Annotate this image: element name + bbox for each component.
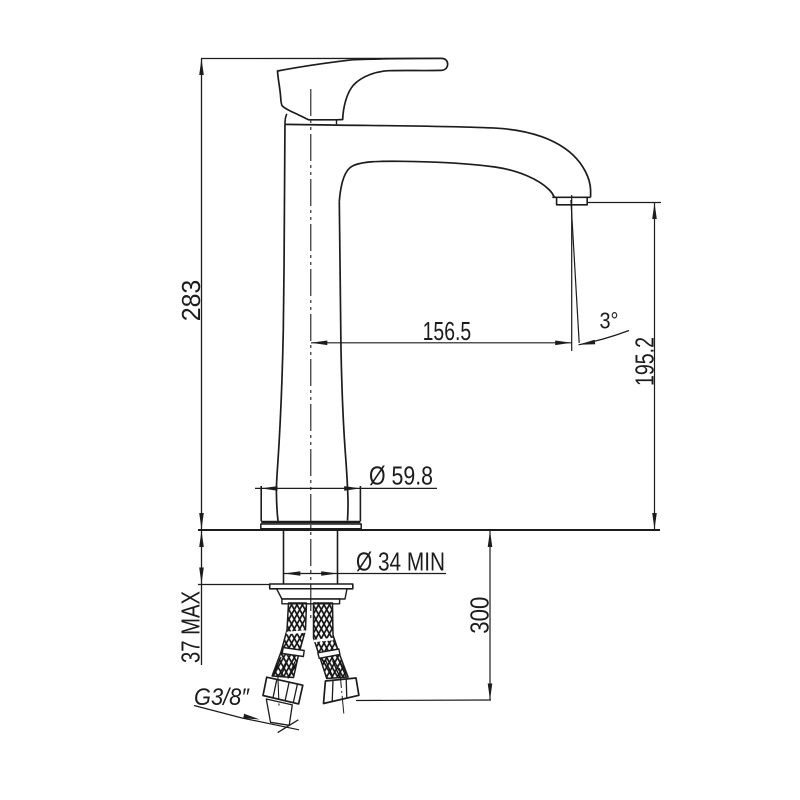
svg-text:300: 300 [465,597,495,634]
svg-text:Ø 34 MIN: Ø 34 MIN [356,547,445,577]
svg-text:37 MAX: 37 MAX [176,591,206,663]
svg-text:3°: 3° [600,308,619,334]
svg-text:283: 283 [176,280,206,322]
svg-text:156.5: 156.5 [423,316,472,346]
svg-text:Ø 59.8: Ø 59.8 [369,461,433,491]
svg-text:G3/8″: G3/8″ [194,684,250,711]
svg-text:195.2: 195.2 [630,337,660,386]
